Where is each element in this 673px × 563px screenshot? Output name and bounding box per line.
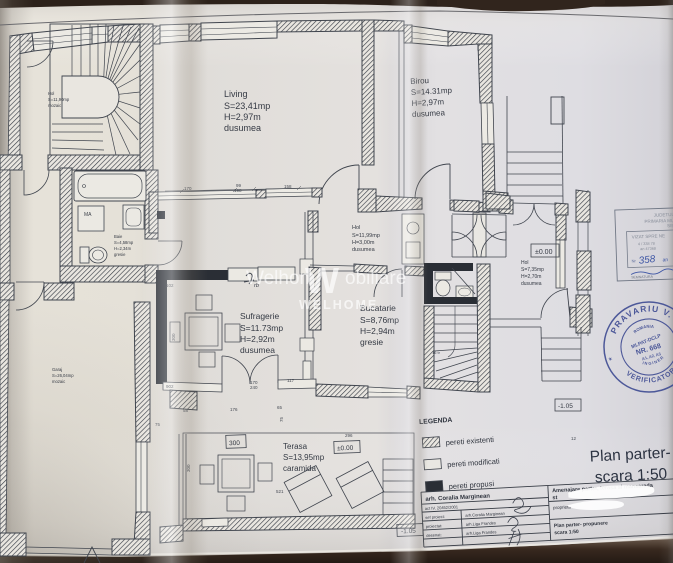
svg-text:S=4,58mp: S=4,58mp [114, 240, 134, 245]
svg-text:proiectat:: proiectat: [426, 523, 443, 529]
svg-text:H=3,00m: H=3,00m [352, 240, 375, 246]
svg-text:mozaic: mozaic [52, 379, 65, 384]
svg-text:4 / 338 78: 4 / 338 78 [638, 242, 655, 247]
svg-text:S=11,99mp: S=11,99mp [352, 233, 380, 239]
svg-text:S=11,90mp: S=11,90mp [48, 97, 70, 102]
svg-text:dusumea: dusumea [521, 281, 542, 287]
svg-text:H=2,34m: H=2,34m [114, 246, 132, 251]
svg-text:gresie: gresie [360, 337, 383, 347]
svg-text:sef proiect:: sef proiect: [425, 514, 445, 520]
svg-text:S=13,95mp: S=13,95mp [283, 453, 325, 462]
svg-text:H=2,92m: H=2,92m [240, 334, 275, 344]
svg-text:st: st [552, 495, 557, 501]
svg-text:S=11.73mp: S=11.73mp [240, 323, 283, 333]
svg-text:an 47368: an 47368 [640, 247, 656, 252]
svg-text:SIB: SIB [667, 223, 673, 228]
svg-text:Garaj: Garaj [52, 367, 62, 372]
svg-text:WELHOME: WELHOME [299, 298, 378, 312]
svg-text:521: 521 [276, 489, 284, 494]
svg-text:H=2,94m: H=2,94m [360, 326, 395, 336]
svg-text:mozaic: mozaic [48, 103, 61, 108]
svg-text:caramida: caramida [283, 464, 316, 473]
svg-text:±0.00: ±0.00 [337, 445, 354, 453]
svg-text:358: 358 [638, 254, 656, 267]
svg-text:W: W [305, 260, 339, 301]
svg-text:Hol: Hol [352, 225, 360, 231]
svg-text:MA: MA [84, 212, 92, 218]
svg-text:an: an [662, 257, 668, 263]
svg-text:117: 117 [287, 378, 295, 383]
svg-text:gresie: gresie [114, 252, 126, 257]
svg-text:Hol: Hol [521, 260, 529, 266]
svg-text:S=7,35mp: S=7,35mp [521, 267, 544, 273]
svg-text:H=2,70m: H=2,70m [521, 274, 541, 280]
svg-text:desenat:: desenat: [426, 532, 442, 538]
svg-text:Hol: Hol [48, 91, 54, 96]
svg-text:dusumea: dusumea [224, 123, 261, 133]
svg-text:Sufragerie: Sufragerie [240, 311, 279, 321]
svg-text:158: 158 [284, 184, 292, 189]
svg-text:±0.00: ±0.00 [535, 249, 553, 256]
svg-text:198: 198 [234, 188, 242, 193]
svg-text:SEMNATURA: SEMNATURA [631, 275, 654, 280]
svg-text:12: 12 [571, 436, 577, 441]
svg-text:JUDETUL: JUDETUL [654, 212, 673, 218]
svg-text:Living: Living [224, 89, 248, 99]
svg-text:dusumea: dusumea [240, 345, 275, 355]
svg-text:dusumea: dusumea [352, 247, 376, 253]
svg-text:240: 240 [250, 385, 258, 390]
svg-text:296: 296 [345, 433, 353, 438]
svg-text:65: 65 [277, 405, 283, 410]
svg-text:-1.05: -1.05 [558, 403, 573, 410]
svg-text:176: 176 [230, 407, 238, 412]
svg-text:Baie: Baie [114, 234, 123, 239]
svg-text:H=2,97m: H=2,97m [224, 112, 261, 122]
svg-text:300: 300 [229, 440, 240, 447]
svg-text:S=23,41mp: S=23,41mp [224, 101, 270, 111]
svg-text:16 tr: 16 tr [432, 350, 441, 355]
svg-text:S=26,04mp: S=26,04mp [52, 373, 74, 378]
svg-text:75: 75 [279, 416, 284, 422]
svg-text:Terasa: Terasa [283, 442, 308, 451]
